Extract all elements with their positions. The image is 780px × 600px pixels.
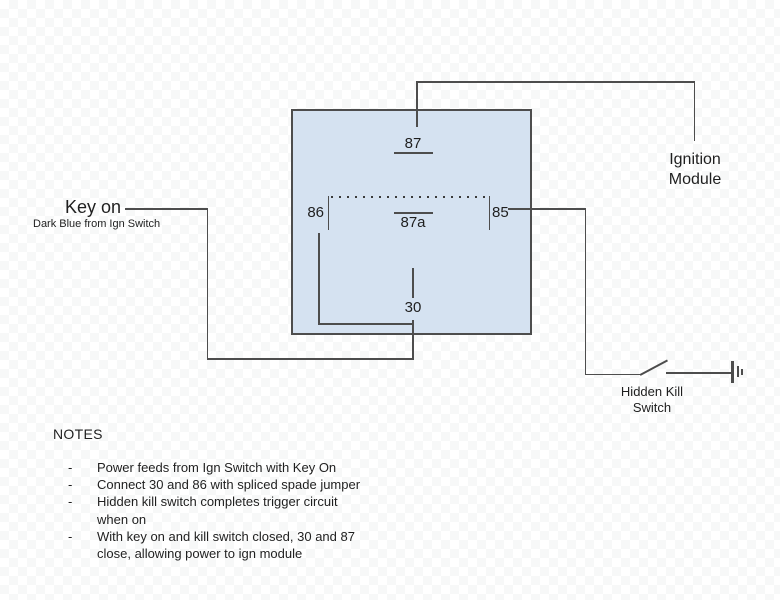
wire-bottom-run: [207, 358, 414, 360]
wire-keyon-lead: [125, 208, 208, 210]
wire-kill-lead: [585, 374, 642, 376]
wire-jumper-86-vertical: [318, 233, 320, 324]
hidden-kill-switch-line2: Switch: [608, 400, 696, 416]
ground-bar-medium: [737, 366, 739, 377]
ignition-module-line1: Ignition: [653, 150, 737, 170]
note-bullet: -: [68, 459, 97, 476]
note-text: Power feeds from Ign Switch with Key On: [97, 459, 409, 476]
notes-list: - Power feeds from Ign Switch with Key O…: [68, 459, 413, 562]
ignition-module-label: Ignition Module: [653, 150, 737, 190]
kill-switch-blade-icon: [640, 360, 668, 376]
note-item: - Connect 30 and 86 with spliced spade j…: [68, 476, 413, 493]
note-text: Hidden kill switch completes trigger cir…: [97, 493, 409, 527]
note-item: - Hidden kill switch completes trigger c…: [68, 493, 413, 527]
wire-85-drop: [585, 208, 587, 375]
wire-30-tail: [412, 320, 414, 359]
terminal-30-stub: [412, 268, 414, 298]
terminal-86-label: 86: [296, 205, 324, 221]
ground-bar-large: [731, 361, 734, 383]
note-line: Power feeds from Ign Switch with Key On: [97, 459, 409, 476]
wiring-diagram-canvas: 87 86 85 87a 30 Key on Dark Blue from Ig…: [0, 0, 780, 600]
terminal-87-stub: [416, 82, 418, 127]
note-text: With key on and kill switch closed, 30 a…: [97, 528, 409, 562]
hidden-kill-switch-label: Hidden Kill Switch: [608, 384, 696, 415]
wire-keyon-down: [207, 208, 209, 359]
terminal-85-label: 85: [492, 205, 522, 221]
note-line: Hidden kill switch completes trigger cir…: [97, 493, 409, 510]
note-item: - With key on and kill switch closed, 30…: [68, 528, 413, 562]
notes-heading: NOTES: [53, 426, 103, 442]
wire-jumper-86-30: [318, 323, 413, 325]
ignition-module-line2: Module: [653, 170, 737, 190]
note-bullet: -: [68, 476, 97, 493]
note-line: Connect 30 and 86 with spliced spade jum…: [97, 476, 409, 493]
terminal-85-bar: [489, 196, 491, 230]
note-item: - Power feeds from Ign Switch with Key O…: [68, 459, 413, 476]
terminal-87-contact-line: [394, 152, 433, 154]
wire-ground-lead: [666, 372, 732, 374]
terminal-86-bar: [328, 196, 330, 230]
note-line: close, allowing power to ign module: [97, 545, 409, 562]
note-line: With key on and kill switch closed, 30 a…: [97, 528, 409, 545]
key-on-sublabel: Dark Blue from Ign Switch: [33, 218, 160, 231]
relay-armature-dotted-line: [331, 196, 487, 198]
wire-top-run: [416, 81, 695, 83]
note-bullet: -: [68, 493, 97, 527]
wire-ignition-drop: [694, 81, 696, 141]
note-bullet: -: [68, 528, 97, 562]
hidden-kill-switch-line1: Hidden Kill: [608, 384, 696, 400]
terminal-87-label: 87: [392, 136, 434, 152]
terminal-87a-label: 87a: [392, 215, 434, 231]
note-line: when on: [97, 511, 409, 528]
terminal-30-label: 30: [392, 300, 434, 316]
ground-bar-small: [741, 369, 743, 375]
key-on-label: Key on: [60, 197, 126, 217]
note-text: Connect 30 and 86 with spliced spade jum…: [97, 476, 409, 493]
